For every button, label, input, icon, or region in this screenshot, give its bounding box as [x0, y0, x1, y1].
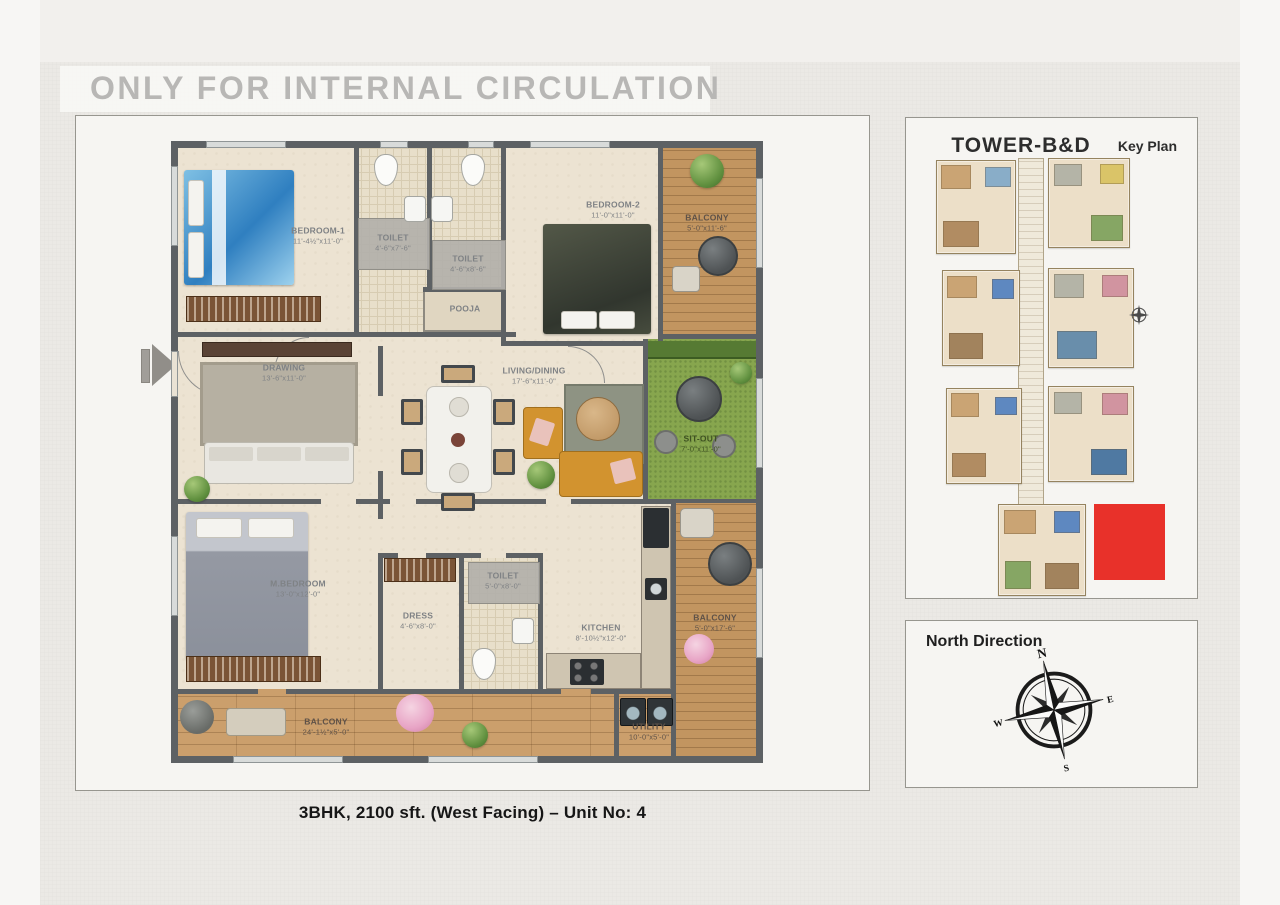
room-dims: 17'-6"x11'-0" [512, 377, 556, 387]
wardrobe-graphic [186, 656, 321, 682]
room-dims: 13'-6"x11'-0" [262, 374, 306, 384]
window-segment [206, 141, 286, 148]
key-plan-unit [946, 388, 1022, 484]
room-dims: 4'-6"x7'-6" [375, 244, 411, 254]
key-plan-unit-room [952, 453, 986, 477]
key-plan-unit-room [1102, 275, 1128, 297]
key-plan-unit [936, 160, 1016, 254]
room-name: POOJA [450, 303, 481, 314]
washbasin-graphic [512, 618, 534, 644]
door-arc [568, 346, 605, 383]
key-plan-unit-room [1057, 331, 1097, 359]
compass-rose-icon: N E S W [977, 633, 1131, 787]
room-name: UTILITY [632, 722, 666, 733]
sofa-cushion [257, 447, 301, 461]
room-label-toilet2: TOILET 4'-6"x8'-6" [450, 254, 486, 275]
plate-graphic [449, 463, 469, 483]
key-plan-unit-room [1100, 164, 1124, 184]
pillow-graphic [561, 311, 597, 329]
room-label-balcony-right: BALCONY 5'-0"x17'-6" [693, 613, 736, 634]
wall-segment [658, 334, 756, 339]
round-table-graphic [698, 236, 738, 276]
room-dims: 24'-1½"x5'-0" [303, 728, 350, 738]
wall-segment [178, 332, 516, 337]
window-segment [233, 756, 343, 763]
key-plan-unit-room [1054, 274, 1084, 298]
room-name: BEDROOM-1 [291, 226, 345, 237]
wardrobe-graphic [384, 558, 456, 582]
dining-chair-graphic [493, 449, 515, 475]
key-plan-unit-room [995, 397, 1017, 415]
wall-segment [658, 148, 663, 346]
compass-n-label: N [1036, 645, 1049, 662]
fridge-graphic [643, 508, 669, 548]
room-dims: 5'-0"x17'-6" [695, 624, 735, 634]
plate-graphic [449, 397, 469, 417]
key-plan-unit-room [1045, 563, 1079, 589]
wardrobe-graphic [186, 296, 321, 322]
room-name: TOILET [377, 233, 408, 244]
key-plan-unit-room [1005, 561, 1031, 589]
window-segment [468, 141, 494, 148]
room-dims: 7'-0"x11'-0" [681, 445, 721, 455]
key-plan-highlighted-unit [1094, 504, 1165, 580]
dining-chair-graphic [401, 399, 423, 425]
room-label-sitout: SIT-OUT 7'-0"x11'-0" [681, 434, 721, 455]
north-direction-title: North Direction [926, 633, 1042, 651]
plant-graphic [184, 476, 210, 502]
watermark-text: ONLY FOR INTERNAL CIRCULATION [90, 70, 721, 107]
round-table-graphic [676, 376, 722, 422]
window-segment [171, 166, 178, 246]
key-plan-unit-room [1102, 393, 1128, 415]
bed1-graphic [184, 170, 294, 285]
plant-graphic [462, 722, 488, 748]
key-plan-unit-room [1091, 215, 1123, 241]
room-label-dress: DRESS 4'-6"x8'-0" [400, 611, 436, 632]
room-label-toilet1: TOILET 4'-6"x7'-6" [375, 233, 411, 254]
plant-graphic [730, 362, 752, 384]
dining-chair-graphic [441, 493, 475, 511]
key-plan-unit-room [1004, 510, 1036, 534]
pillow-graphic [196, 518, 242, 538]
dining-table-graphic [426, 386, 492, 493]
room-dims: 13'-0"x12'-0" [276, 590, 321, 600]
wall-segment [178, 689, 258, 694]
sofa-cushion [209, 447, 253, 461]
room-name: SIT-OUT [684, 434, 719, 445]
key-plan-unit-room [992, 279, 1014, 299]
room-label-mbedroom: M.BEDROOM 13'-0"x12'-0" [270, 579, 326, 600]
stove-graphic [570, 659, 604, 685]
window-segment [171, 536, 178, 616]
wall-segment [378, 504, 383, 519]
wall-segment [378, 471, 383, 499]
window-segment [756, 178, 763, 268]
room-dims: 4'-6"x8'-0" [400, 622, 436, 632]
dining-chair-graphic [441, 365, 475, 383]
entry-arrow-bar [141, 349, 150, 383]
stool-graphic [654, 430, 678, 454]
tv-unit-graphic [202, 342, 352, 357]
room-label-drawing: DRAWING 13'-6"x11'-0" [262, 363, 306, 384]
room-dims: 4'-6"x8'-6" [450, 265, 486, 275]
blanket-fold [212, 170, 226, 285]
room-label-toilet3: TOILET 5'-0"x8'-0" [485, 571, 521, 592]
wall-segment [378, 346, 383, 396]
washbasin-graphic [404, 196, 426, 222]
room-name: DRESS [403, 611, 433, 622]
room-label-balcony-bottom: BALCONY 24'-1½"x5'-0" [303, 717, 350, 738]
cushion-graphic [529, 417, 555, 446]
room-name: TOILET [452, 254, 483, 265]
room-dims: 11'-0"x11'-0" [591, 211, 634, 221]
key-plan-drawing [906, 118, 1197, 598]
north-direction-panel: North Direction N E S W [905, 620, 1198, 788]
room-name: BEDROOM-2 [586, 200, 640, 211]
room-dims: 5'-0"x8'-0" [485, 582, 521, 592]
room-name: M.BEDROOM [270, 579, 326, 590]
wall-segment [501, 341, 661, 346]
room-name: BALCONY [693, 613, 736, 624]
key-plan-unit [942, 270, 1020, 366]
wall-segment [571, 499, 671, 504]
key-plan-unit-room [1054, 164, 1082, 186]
key-plan-unit-room [951, 393, 979, 417]
room-label-bedroom1: BEDROOM-1 11'-4½"x11'-0" [291, 226, 345, 247]
wall-segment [378, 553, 383, 689]
wall-segment [459, 553, 464, 689]
room-dims: 5'-0"x11'-6" [687, 224, 727, 234]
window-segment [428, 756, 538, 763]
plant-graphic [527, 461, 555, 489]
pillow-graphic [248, 518, 294, 538]
wall-segment [591, 689, 671, 694]
room-label-kitchen: KITCHEN 8'-10½"x12'-0" [575, 623, 626, 644]
key-plan-panel: TOWER-B&D Key Plan [905, 117, 1198, 599]
window-segment [756, 378, 763, 468]
plan-caption: 3BHK, 2100 sft. (West Facing) – Unit No:… [75, 803, 870, 823]
room-label-bedroom2: BEDROOM-2 11'-0"x11'-0" [586, 200, 640, 221]
entry-door-opening [171, 351, 178, 397]
key-plan-unit-room [943, 221, 979, 247]
top-band [40, 0, 1240, 62]
key-plan-unit [1048, 158, 1130, 248]
compass-s-label: S [1063, 764, 1070, 775]
key-plan-unit [1048, 268, 1134, 368]
key-plan-unit-room [1091, 449, 1127, 475]
compass-w-label: W [993, 718, 1005, 730]
wall-segment [416, 499, 546, 504]
room-name: KITCHEN [581, 623, 620, 634]
room-name: BALCONY [304, 717, 347, 728]
room-label-living: LIVING/DINING 17'-6"x11'-0" [502, 366, 565, 387]
plant-graphic [690, 154, 724, 188]
pillow-graphic [188, 180, 204, 226]
key-plan-unit-room [985, 167, 1011, 187]
centerpiece-graphic [451, 433, 465, 447]
room-label-pooja: POOJA [450, 303, 481, 314]
window-segment [756, 568, 763, 658]
wall-segment [614, 689, 619, 756]
wall-segment [356, 499, 390, 504]
mini-compass-icon [1128, 304, 1150, 326]
sofa-orange-graphic [559, 451, 643, 497]
flower-pot-graphic [684, 634, 714, 664]
key-plan-unit [998, 504, 1086, 596]
key-plan-unit-room [1054, 392, 1082, 414]
sofa-cushion [305, 447, 349, 461]
armchair-graphic [523, 407, 563, 459]
coffee-table-graphic [576, 397, 620, 441]
wall-segment [286, 689, 561, 694]
room-name: BALCONY [685, 213, 728, 224]
washbasin-graphic [431, 196, 453, 222]
room-dims: 11'-4½"x11'-0" [293, 237, 343, 247]
round-table-graphic [708, 542, 752, 586]
key-plan-unit-room [941, 165, 971, 189]
room-dims: 8'-10½"x12'-0" [575, 634, 626, 644]
room-dims: 10'-0"x5'-0" [629, 733, 669, 743]
planter-strip-graphic [648, 341, 756, 359]
key-plan-unit-room [1054, 511, 1080, 533]
room-name: TOILET [487, 571, 518, 582]
flower-pot-graphic [396, 694, 434, 732]
room-label-utility: UTILITY 10'-0"x5'-0" [629, 722, 669, 743]
window-segment [380, 141, 408, 148]
pillow-graphic [599, 311, 635, 329]
dining-chair-graphic [493, 399, 515, 425]
window-segment [530, 141, 610, 148]
pillow-graphic [188, 232, 204, 278]
key-plan-unit-room [947, 276, 977, 298]
sofa-white-graphic [204, 442, 354, 484]
floor-plan-panel: BEDROOM-1 11'-4½"x11'-0" TOILET 4'-6"x7'… [75, 115, 870, 791]
bench-graphic [226, 708, 286, 736]
key-plan-unit-room [949, 333, 983, 359]
room-label-balcony-top: BALCONY 5'-0"x11'-6" [685, 213, 728, 234]
cushion-graphic [610, 458, 637, 485]
sink-graphic [645, 578, 667, 600]
chair-graphic [680, 508, 714, 538]
planter-graphic [180, 700, 214, 734]
compass-e-label: E [1106, 695, 1114, 706]
dining-chair-graphic [401, 449, 423, 475]
key-plan-unit [1048, 386, 1134, 482]
room-name: DRAWING [263, 363, 305, 374]
room-name: LIVING/DINING [502, 366, 565, 377]
bed2-graphic [543, 224, 651, 334]
chair-graphic [672, 266, 700, 292]
floor-plan: BEDROOM-1 11'-4½"x11'-0" TOILET 4'-6"x7'… [171, 141, 763, 763]
